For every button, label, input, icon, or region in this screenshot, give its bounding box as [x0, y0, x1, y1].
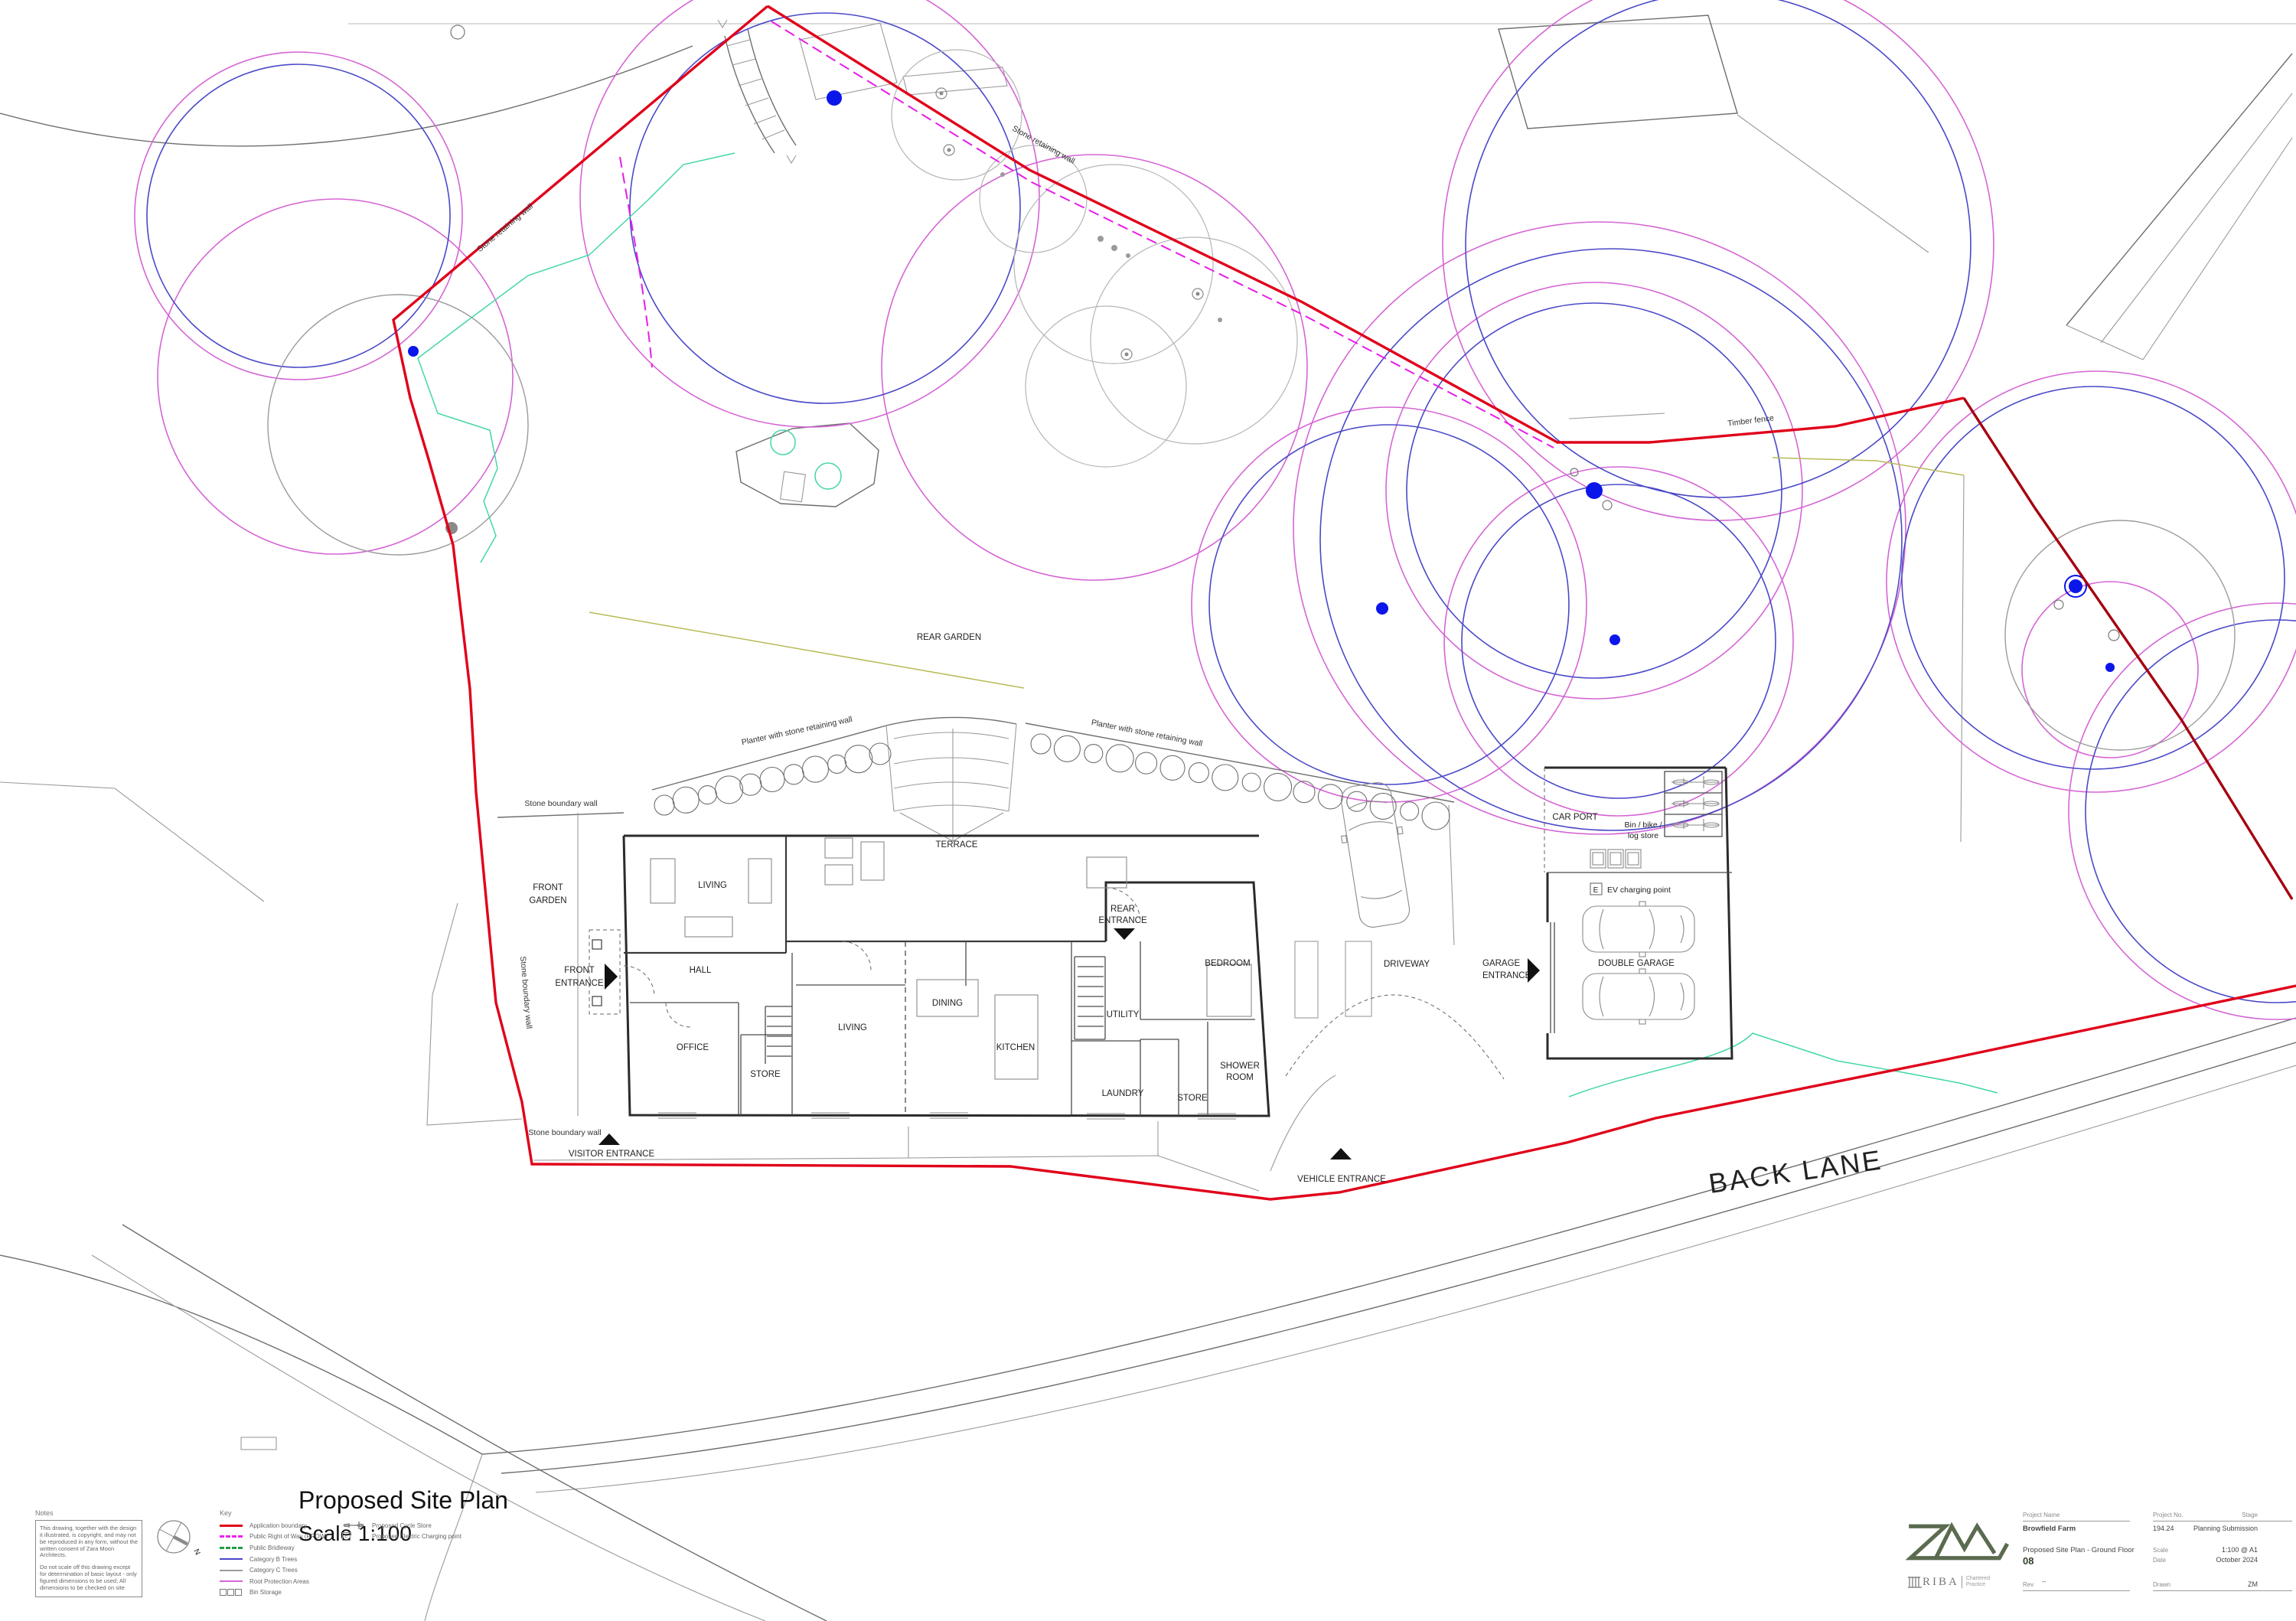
- front-garden-label: FRONT: [533, 883, 563, 892]
- open-circle-symbol: [2108, 630, 2119, 641]
- bin-storage-icon: [220, 1586, 243, 1600]
- shrub: [1264, 773, 1292, 801]
- room-label-living2: LIVING: [838, 1023, 867, 1032]
- room-label-office: OFFICE: [677, 1043, 709, 1052]
- drawing-number: 08: [2023, 1555, 2033, 1567]
- room-label-shower: ROOM: [1226, 1073, 1254, 1082]
- key-item-label: Public Right of Way (PROW): [249, 1533, 328, 1540]
- tree-trunk-b: [1376, 602, 1388, 615]
- shrub: [1212, 765, 1238, 791]
- shrub: [1136, 752, 1157, 774]
- riba-columns-icon: [1907, 1575, 1923, 1589]
- project-name-label: Project Name: [2023, 1512, 2060, 1518]
- key-item-label: Root Protection Areas: [249, 1578, 309, 1585]
- key-item-label: Public Bridleway: [249, 1544, 295, 1551]
- tree-trunk-b: [1586, 482, 1603, 499]
- root-protection-area-circle: [1293, 222, 1906, 834]
- shrub: [1422, 802, 1450, 830]
- bin-bike-log-label: Bin / bike /: [1624, 820, 1662, 830]
- driveway-label: DRIVEWAY: [1384, 960, 1430, 969]
- riba-wordmark: RIBA: [1923, 1576, 1959, 1589]
- rear-entrance-label: ENTRANCE: [1098, 916, 1147, 925]
- room-label-shower: SHOWER: [1220, 1062, 1260, 1071]
- room-label-kitchen: KITCHEN: [996, 1043, 1035, 1052]
- shrub: [673, 787, 699, 813]
- root-protection-area-circle: [135, 52, 462, 380]
- rev-value: --: [2042, 1578, 2046, 1585]
- open-circle-symbol: [2054, 600, 2063, 609]
- vehicle-entrance-label: VEHICLE ENTRANCE: [1297, 1175, 1386, 1184]
- rule: [2153, 1521, 2292, 1522]
- category-b-tree-circle: [1466, 0, 1971, 497]
- terrace-label: TERRACE: [936, 840, 978, 850]
- tree-canopy-outline: [1091, 237, 1297, 444]
- stone-boundary-wall-label: Stone boundary wall: [518, 956, 533, 1029]
- shrub: [1401, 802, 1419, 820]
- front-entrance-label: ENTRANCE: [555, 979, 604, 988]
- house-floor-plan: [589, 836, 1269, 1119]
- key-item-label: Category C Trees: [249, 1567, 298, 1574]
- garage-entrance-label: GARAGE: [1482, 959, 1521, 968]
- stage-label: Stage: [2153, 1512, 2258, 1518]
- garage-car-2: [1583, 969, 1694, 1024]
- tree-canopy-outline: [1026, 306, 1186, 467]
- room-label-hall: HALL: [690, 966, 712, 975]
- stone-retaining-wall-label: Stone retaining wall: [475, 202, 535, 254]
- stage-value: Planning Submission: [2153, 1525, 2258, 1532]
- ev-charging-label: EV charging point: [1607, 886, 1671, 895]
- room-label-dining: DINING: [932, 999, 963, 1008]
- survey-dot: [1111, 245, 1117, 251]
- double-garage-label: DOUBLE GARAGE: [1598, 959, 1675, 968]
- room-label-living: LIVING: [698, 881, 727, 890]
- tree-trunk-b: [2069, 579, 2082, 593]
- shrub: [1054, 735, 1080, 762]
- timber-fence-label: Timber fence: [1727, 413, 1775, 428]
- key-item: EProposed Electric Charging point: [342, 1531, 461, 1543]
- bike-store: [1665, 771, 1722, 837]
- rear-entrance-arrow: [1114, 928, 1135, 940]
- rear-garden-label: REAR GARDEN: [917, 633, 981, 642]
- key-item: Category B Trees: [220, 1554, 342, 1565]
- garden-walls: [497, 717, 1454, 1191]
- stump-symbol-dot: [940, 92, 944, 96]
- ev-letter: E: [1593, 886, 1599, 895]
- key-heading: Key: [220, 1509, 461, 1517]
- stone-retaining-wall-label: Stone retaining wall: [1010, 124, 1076, 166]
- tree-trunk-b: [827, 90, 842, 106]
- bin-bike-log-label: log store: [1628, 831, 1658, 840]
- shrub: [740, 774, 762, 795]
- category-b-tree-circle: [1902, 386, 2285, 769]
- tree-trunk-b: [1609, 634, 1620, 645]
- survey-dot: [1097, 236, 1104, 242]
- open-circle-symbol: [1603, 501, 1612, 510]
- shrub: [802, 756, 828, 782]
- rule: [2023, 1590, 2130, 1591]
- shrub: [760, 768, 784, 792]
- key-item: Category C Trees: [220, 1564, 342, 1576]
- notes-heading: Notes: [35, 1509, 142, 1517]
- key-panel: Key Application boundaryPublic Right of …: [220, 1509, 461, 1598]
- visitor-entrance-arrow: [598, 1133, 620, 1145]
- cars: [1334, 780, 1694, 1024]
- root-protection-area-circle: [158, 199, 513, 554]
- tree-survey-circles: [135, 0, 2296, 1019]
- key-item: Public Bridleway: [220, 1542, 342, 1554]
- shrub: [1318, 784, 1342, 809]
- riba-chartered: Chartered: [1966, 1576, 1990, 1581]
- copyright-note: This drawing, together with the design i…: [40, 1525, 138, 1559]
- tree-trunk-b: [2105, 663, 2115, 672]
- shrub: [869, 743, 891, 765]
- survey-dot: [1000, 172, 1005, 177]
- shrub: [698, 786, 716, 804]
- shrub: [1160, 755, 1185, 780]
- root-protection-area-circle: [580, 0, 1039, 427]
- drawn-value: ZM: [2153, 1580, 2258, 1588]
- electric-charging-icon: E: [342, 1532, 351, 1541]
- category-b-tree-circle: [1320, 249, 1902, 830]
- survey-dot: [1218, 318, 1222, 322]
- key-item: Proposed Cycle Store: [342, 1520, 461, 1531]
- rule: [2153, 1590, 2292, 1591]
- drawing-title: Proposed Site Plan - Ground Floor: [2023, 1546, 2135, 1554]
- shrub: [1106, 745, 1133, 772]
- front-garden-label: GARDEN: [529, 896, 566, 905]
- shrub: [1370, 793, 1396, 819]
- shrub: [1293, 781, 1315, 803]
- rear-entrance-label: REAR: [1110, 905, 1135, 914]
- shrub: [784, 765, 804, 784]
- survey-dot: [1126, 253, 1130, 258]
- key-item: Application boundary: [220, 1520, 342, 1531]
- tree-canopy-outline: [892, 50, 1022, 180]
- stump-symbol-dot: [947, 148, 951, 152]
- key-item-label: Proposed Cycle Store: [372, 1522, 432, 1529]
- garage-car-1: [1583, 902, 1694, 957]
- shrub: [1189, 763, 1208, 783]
- root-protection-area-circle: [1887, 371, 2296, 792]
- scaling-note: Do not scale off this drawing except for…: [40, 1564, 138, 1591]
- rev-label: Rev: [2023, 1581, 2033, 1588]
- vehicle-entrance-arrow: [1330, 1148, 1352, 1159]
- cycle-store-icon: [342, 1521, 365, 1530]
- landscape-lines: [418, 153, 1998, 1097]
- front-entrance-arrow: [605, 964, 618, 990]
- room-label-laundry: LAUNDRY: [1102, 1089, 1144, 1098]
- riba-badge: RIBA Chartered Practice: [1907, 1575, 1990, 1589]
- shrub: [828, 755, 846, 773]
- category-b-tree-circle: [147, 64, 450, 367]
- garage-entrance-label: ENTRANCE: [1482, 971, 1531, 980]
- key-item-label: Bin Storage: [249, 1589, 282, 1596]
- compass-north-label: N: [191, 1548, 201, 1557]
- date-value: October 2024: [2153, 1556, 2258, 1564]
- plan-labels: Stone retaining wall Stone retaining wal…: [475, 124, 1884, 1199]
- key-item-label: Category B Trees: [249, 1556, 297, 1563]
- car-port-label: CAR PORT: [1552, 813, 1597, 822]
- notes-panel: Notes This drawing, together with the de…: [35, 1509, 142, 1597]
- planter-label: Planter with stone retaining wall: [1091, 718, 1203, 749]
- context-linework: [0, 15, 2292, 1125]
- drawing-sheet: Stone retaining wall Stone retaining wal…: [0, 0, 2296, 1621]
- bin-storage-icons: [1590, 850, 1641, 868]
- shrub: [1242, 773, 1261, 791]
- garage-carport: [1544, 768, 1732, 1058]
- public-right-of-way: [620, 21, 1554, 448]
- project-name-value: Browfield Farm: [2023, 1525, 2076, 1533]
- key-column-1: Application boundaryPublic Right of Way …: [220, 1520, 342, 1598]
- room-label-utility: UTILITY: [1107, 1010, 1140, 1019]
- application-boundary: [393, 6, 2296, 1199]
- tree-canopy-outline: [1014, 165, 1213, 364]
- root-protection-area-circle: [2069, 603, 2296, 1019]
- category-b-tree-circle: [1209, 425, 1569, 784]
- tree-trunk-b: [408, 346, 419, 357]
- planter-label: Planter with stone retaining wall: [741, 715, 853, 747]
- shrub: [1084, 745, 1103, 763]
- room-label-store: STORE: [750, 1070, 781, 1079]
- driveway-car: [1334, 780, 1417, 930]
- site-plan-drawing: Stone retaining wall Stone retaining wal…: [0, 0, 2296, 1621]
- scale-value: 1:100 @ A1: [2153, 1546, 2258, 1554]
- key-column-2: Proposed Cycle StoreEProposed Electric C…: [342, 1520, 461, 1598]
- planter-shrubs: [654, 734, 1450, 830]
- key-item-label: Proposed Electric Charging point: [372, 1533, 461, 1540]
- root-protection-area-circle: [1443, 0, 1994, 520]
- key-item-label: Application boundary: [249, 1522, 307, 1529]
- room-label-store2: STORE: [1177, 1094, 1208, 1103]
- room-label-bedroom: BEDROOM: [1205, 959, 1250, 968]
- garage-entrance-arrow: [1528, 958, 1540, 983]
- zma-logo: [1906, 1522, 2013, 1563]
- shrub: [716, 776, 743, 804]
- key-item: Bin Storage: [220, 1587, 342, 1599]
- visitor-entrance-label: VISITOR ENTRANCE: [569, 1150, 655, 1159]
- stone-boundary-wall-label: Stone boundary wall: [528, 1128, 601, 1137]
- shrub: [1031, 734, 1051, 754]
- rule: [2023, 1521, 2130, 1522]
- shrub: [845, 745, 872, 773]
- open-circle-symbol: [451, 25, 465, 39]
- riba-practice: Practice: [1966, 1582, 1985, 1587]
- stone-boundary-wall-label: Stone boundary wall: [524, 799, 597, 808]
- external-steps: [718, 20, 796, 163]
- shrub: [654, 795, 674, 815]
- stump-symbol-dot: [1125, 353, 1129, 357]
- garden-outcrop: [736, 423, 879, 507]
- notes-box: This drawing, together with the design i…: [35, 1520, 142, 1597]
- key-item: Public Right of Way (PROW): [220, 1531, 342, 1543]
- garden-steps: [886, 717, 1016, 841]
- riba-divider: [1962, 1576, 1962, 1588]
- north-compass: N: [158, 1521, 201, 1557]
- front-entrance-label: FRONT: [564, 966, 595, 975]
- stump-symbol-dot: [1196, 292, 1200, 296]
- root-protection-area-circle: [1192, 407, 1587, 802]
